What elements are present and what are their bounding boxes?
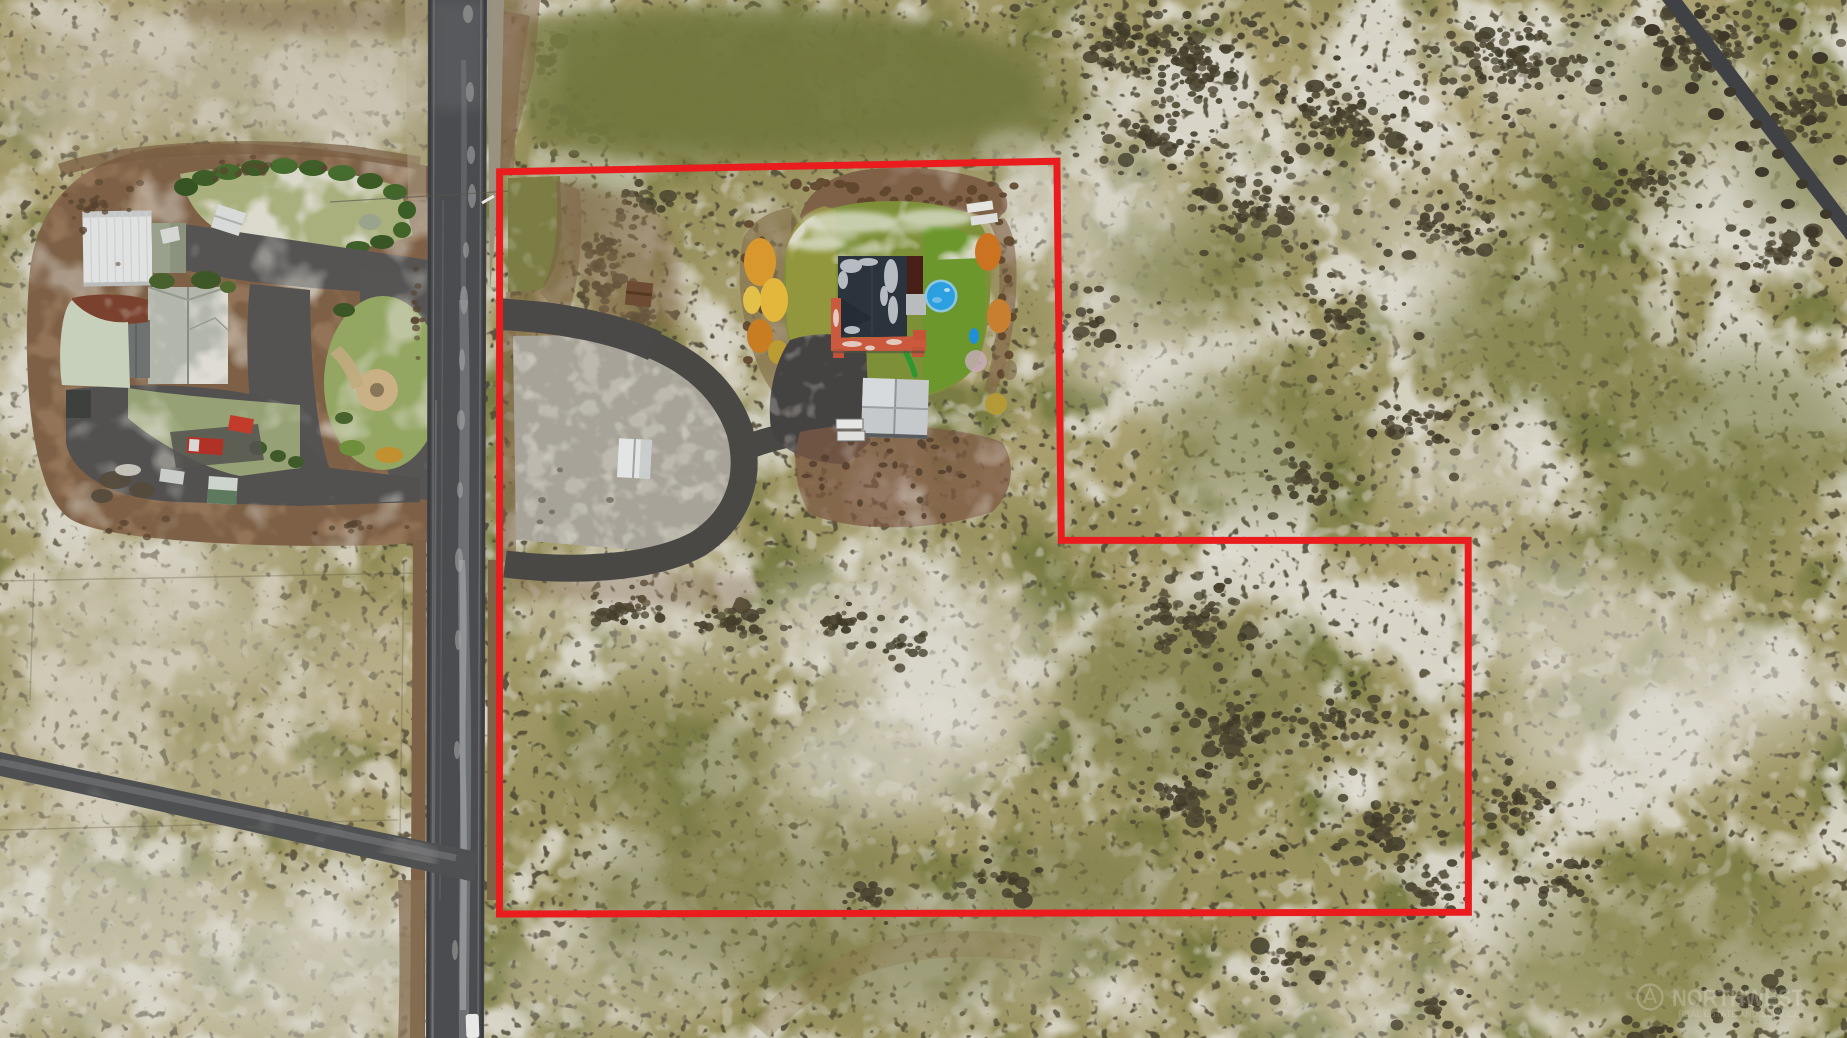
svg-text:NORTHWEST: NORTHWEST: [1672, 985, 1804, 1012]
svg-text:REAL ESTATE AND SERVICES: REAL ESTATE AND SERVICES: [1678, 1009, 1806, 1019]
